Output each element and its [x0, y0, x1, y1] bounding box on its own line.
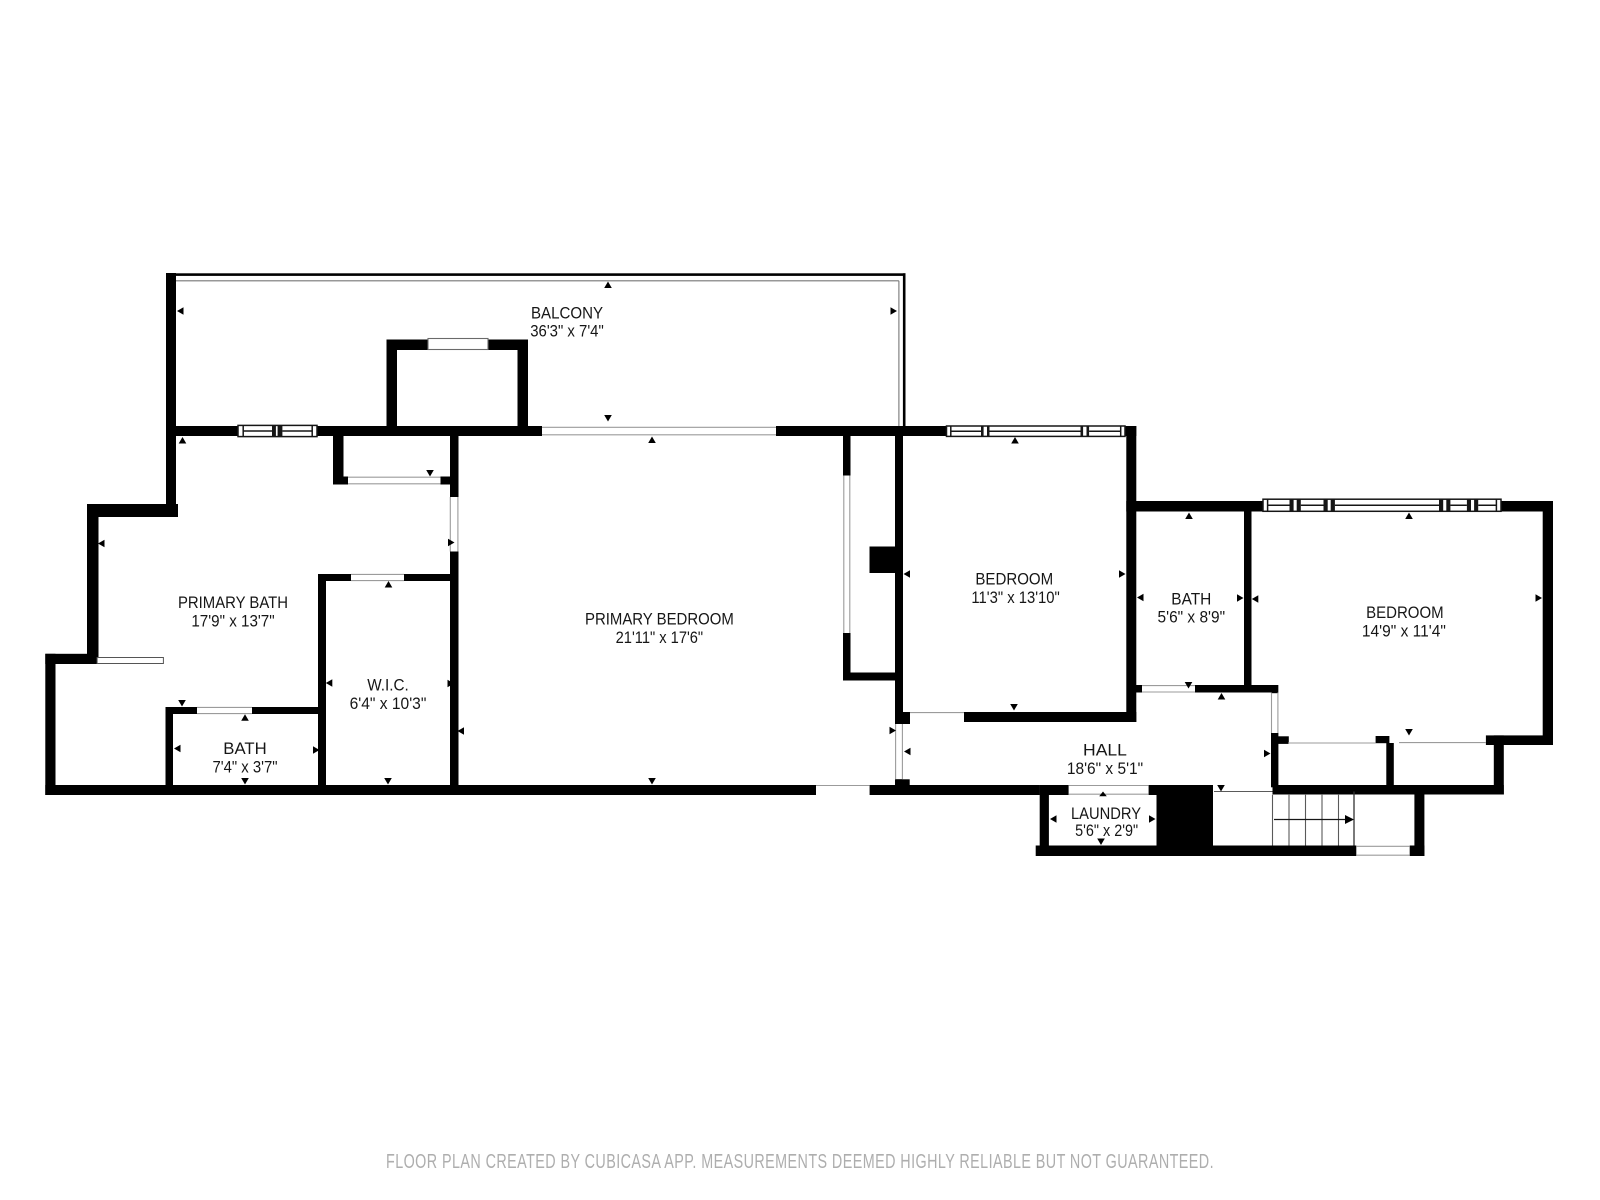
- svg-text:BATH: BATH: [1171, 589, 1211, 608]
- svg-text:21'11" x 17'6": 21'11" x 17'6": [616, 628, 704, 647]
- svg-text:18'6" x 5'1": 18'6" x 5'1": [1067, 759, 1143, 778]
- svg-text:6'4" x 10'3": 6'4" x 10'3": [350, 694, 427, 713]
- svg-text:FLOOR PLAN CREATED BY CUBICASA: FLOOR PLAN CREATED BY CUBICASA APP. MEAS…: [386, 1151, 1214, 1173]
- svg-text:PRIMARY BATH: PRIMARY BATH: [178, 593, 288, 612]
- svg-text:BATH: BATH: [223, 739, 266, 758]
- svg-text:36'3" x 7'4": 36'3" x 7'4": [530, 322, 604, 341]
- svg-text:5'6" x 8'9": 5'6" x 8'9": [1158, 607, 1226, 626]
- svg-text:BEDROOM: BEDROOM: [1366, 603, 1444, 622]
- svg-text:14'9" x 11'4": 14'9" x 11'4": [1362, 621, 1446, 640]
- svg-text:PRIMARY BEDROOM: PRIMARY BEDROOM: [585, 609, 734, 628]
- svg-text:5'6" x 2'9": 5'6" x 2'9": [1075, 821, 1138, 840]
- svg-text:HALL: HALL: [1083, 740, 1127, 759]
- svg-text:7'4" x 3'7": 7'4" x 3'7": [213, 757, 278, 776]
- svg-text:11'3" x 13'10": 11'3" x 13'10": [971, 588, 1059, 607]
- svg-text:17'9" x 13'7": 17'9" x 13'7": [191, 612, 274, 631]
- svg-text:BALCONY: BALCONY: [531, 303, 603, 322]
- svg-text:BEDROOM: BEDROOM: [975, 569, 1053, 588]
- svg-text:W.I.C.: W.I.C.: [367, 675, 409, 694]
